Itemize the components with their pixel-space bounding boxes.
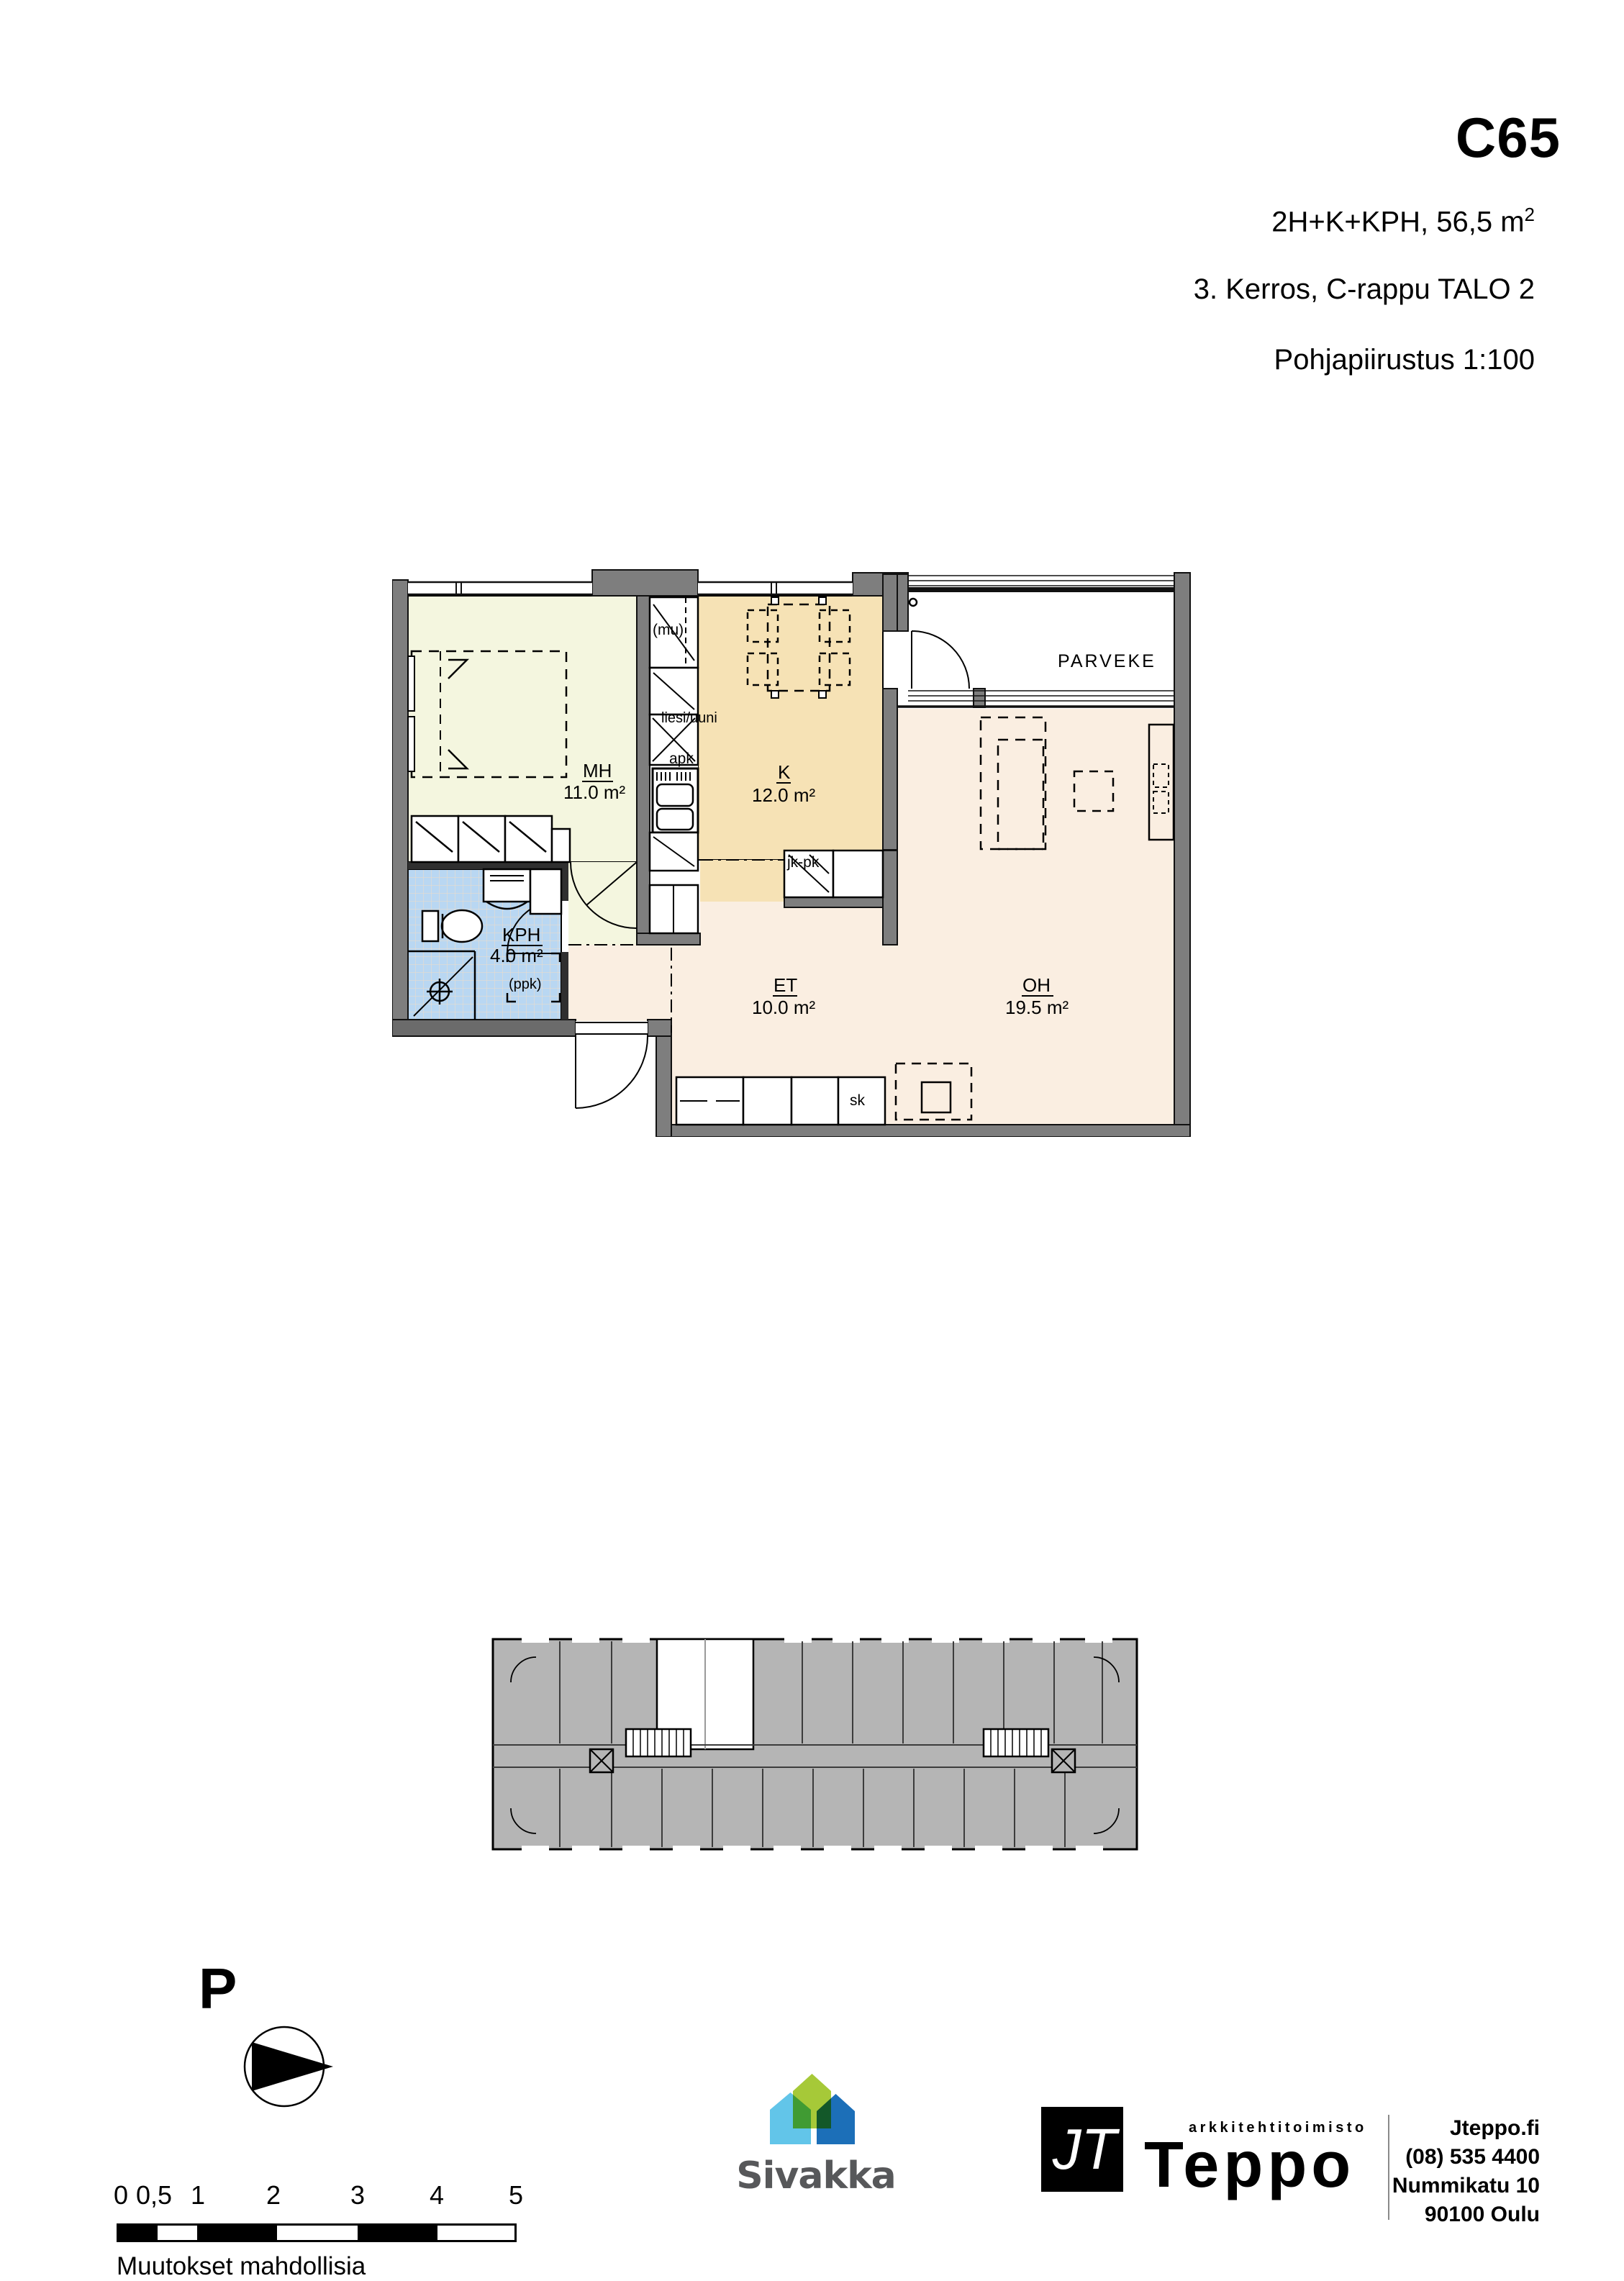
compass-icon [237,2015,342,2119]
drawing-title: Pohjapiirustus 1:100 [1274,344,1535,376]
wall-mh-strip [637,596,650,933]
wall-et-step [656,1036,671,1137]
wall-kph-top [408,862,568,869]
wall-bottom [671,1125,1190,1137]
entry-door-icon [576,1021,648,1108]
fridge-label: jk-pk [786,854,820,871]
sink-icon [653,768,698,833]
apartment-spec-text: 2H+K+KPH, 56,5 m [1271,206,1524,237]
apartment-spec: 2H+K+KPH, 56,5 m2 [1271,204,1535,238]
washer-label: (ppk) [509,976,542,992]
jt-monogram-icon: JT [1041,2107,1123,2192]
scale-tick-4: 4 [430,2180,444,2210]
balcony-railing [908,576,1174,592]
k-name: K [778,761,791,783]
kph-area: 4.0 m² [490,945,543,966]
apartment-spec-sup: 2 [1525,204,1535,225]
room-mh-hall [568,862,637,945]
wall-jkpk-right [883,851,897,945]
scale-tick-2: 2 [266,2180,281,2210]
mh-name: MH [583,760,612,781]
north-label: P [199,1956,237,2022]
jt-monogram-text: JT [1052,2117,1120,2181]
scale-tick-0: 0 [114,2180,128,2210]
architect-name: Teppo [1144,2128,1355,2203]
room-et-n2 [784,907,883,945]
room-et [568,945,897,1034]
wall-kph-bottom [392,1020,576,1036]
wardrobes [412,816,570,862]
scale-tick-05: 0,5 [136,2180,172,2210]
wall-top-block [592,570,698,596]
balcony-label: PARVEKE [1058,651,1156,671]
room-parveke [908,592,1174,689]
oh-area: 19.5 m² [1005,997,1069,1018]
wall-kph-right-a [561,862,568,901]
wall-entry-right [648,1020,671,1036]
toilet-icon [422,910,482,942]
room-k [698,596,883,860]
wall-left [392,580,408,1036]
dishwasher-label: apk [669,750,694,767]
scale-tick-5: 5 [509,2180,523,2210]
wall-parveke-left [897,574,908,631]
disclaimer: Muutokset mahdollisia [117,2252,366,2281]
room-oh [897,709,1174,1125]
window-k [698,581,853,595]
architect-phone: (08) 535 4400 [1392,2143,1540,2172]
architect-contact: Jteppo.fi (08) 535 4400 Nummikatu 10 901… [1392,2114,1540,2229]
oh-name: OH [1022,974,1051,996]
scale-tick-3: 3 [350,2180,365,2210]
et-name: ET [774,974,797,996]
architect-street: Nummikatu 10 [1392,2172,1540,2200]
wall-k-oh [883,689,897,850]
architect-city: 90100 Oulu [1392,2200,1540,2229]
mh-area: 11.0 m² [563,781,626,803]
room-et-n1 [700,902,784,945]
sivakka-houses-icon [732,2068,905,2154]
architect-website: Jteppo.fi [1392,2114,1540,2143]
k-area: 12.0 m² [752,784,815,806]
apartment-floor: 3. Kerros, C-rappu TALO 2 [1194,273,1535,306]
stove-label: liesi/uuni [661,710,717,726]
wall-jkpk-stub [784,897,897,907]
floor-plan-sheet: C65 2H+K+KPH, 56,5 m2 3. Kerros, C-rappu… [0,0,1624,2281]
room-k-entry [700,860,784,902]
floor-plan: MH 11.0 m² K 12.0 m² KPH 4.0 m² ET 10.0 … [392,561,1191,1137]
et-area: 10.0 m² [752,997,815,1018]
kph-cabinet [530,869,561,914]
apartment-code: C65 [1456,105,1561,171]
divider [1388,2115,1389,2220]
building-overview [482,1628,1148,1869]
sivakka-wordmark: Sivakka [732,2154,899,2198]
window-oh-band [897,691,1174,707]
wall-band-divider [974,689,985,707]
wall-strip-stub [637,933,700,945]
microwave-label: (mu) [653,622,684,638]
kph-name: KPH [502,924,540,945]
wall-k-parveke-upper [883,574,897,631]
scale-tick-1: 1 [191,2180,205,2210]
closet-label: sk [850,1092,866,1109]
wall-kph-right-b [561,952,568,1020]
window-mh [408,581,592,595]
scale-bar [117,2223,517,2242]
wall-right [1174,573,1190,1137]
